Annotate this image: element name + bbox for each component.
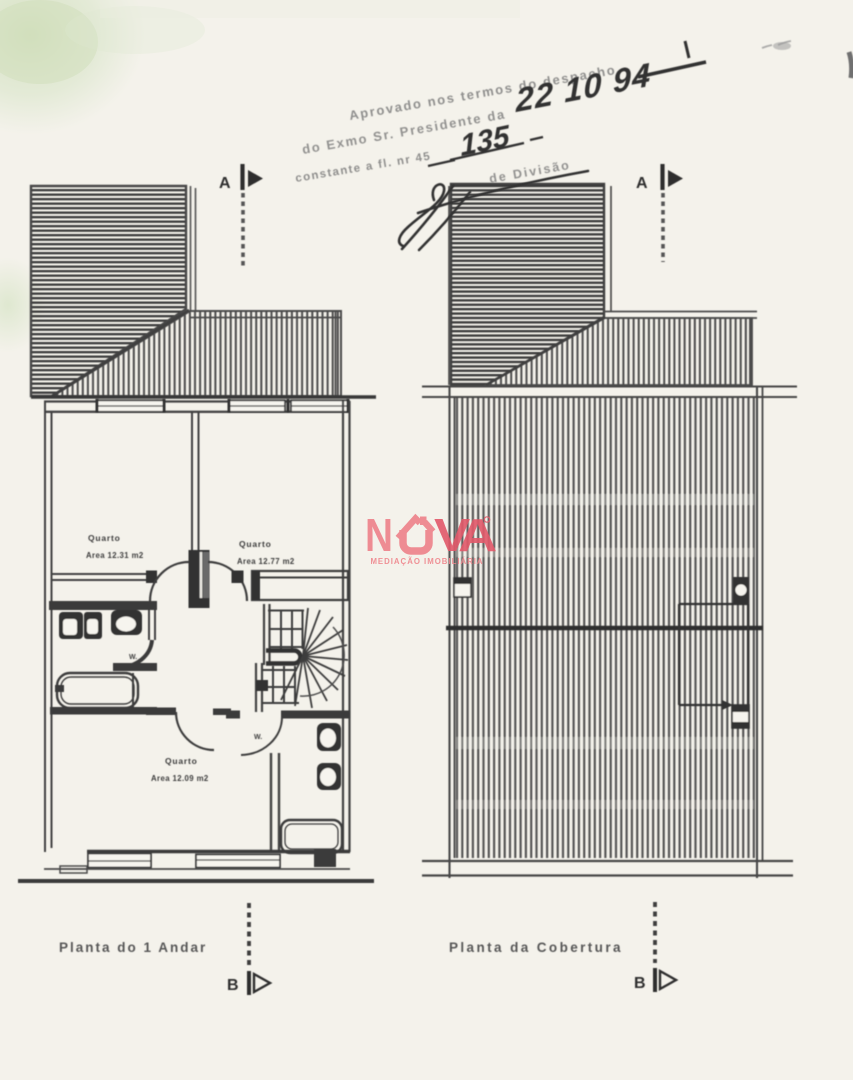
svg-text:W.: W. bbox=[254, 734, 262, 741]
svg-text:MEDIAÇÃO IMOBILIÁRIA: MEDIAÇÃO IMOBILIÁRIA bbox=[370, 557, 483, 566]
svg-text:Area 12.09 m2: Area 12.09 m2 bbox=[151, 774, 209, 783]
svg-text:B: B bbox=[227, 977, 239, 994]
svg-text:W.: W. bbox=[129, 654, 137, 661]
svg-text:Quarto: Quarto bbox=[88, 533, 121, 543]
svg-text:Area 12.77 m2: Area 12.77 m2 bbox=[237, 557, 295, 566]
svg-text:Quarto: Quarto bbox=[165, 756, 198, 766]
svg-text:A: A bbox=[219, 175, 231, 192]
svg-text:A: A bbox=[636, 175, 648, 192]
svg-text:Area 12.31 m2: Area 12.31 m2 bbox=[86, 551, 144, 560]
svg-text:Planta da Cobertura: Planta da Cobertura bbox=[449, 940, 623, 955]
svg-text:Quarto: Quarto bbox=[239, 539, 272, 549]
svg-text:Planta do 1 Andar: Planta do 1 Andar bbox=[59, 940, 207, 955]
svg-text:B: B bbox=[634, 975, 646, 992]
svg-text:N: N bbox=[365, 509, 393, 561]
